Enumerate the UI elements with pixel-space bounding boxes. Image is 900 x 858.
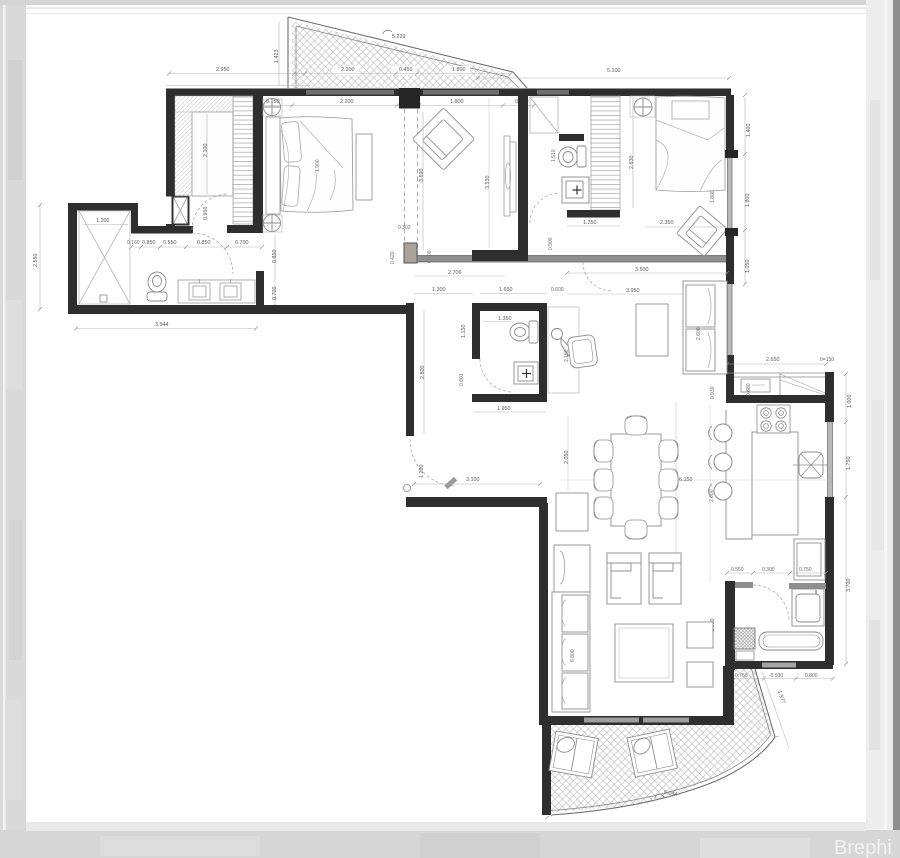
svg-text:2.100: 2.100: [203, 144, 209, 158]
svg-text:0.930: 0.930: [710, 386, 716, 399]
svg-text:1.200: 1.200: [96, 218, 110, 224]
svg-text:2.630: 2.630: [629, 156, 635, 170]
svg-text:3.944: 3.944: [155, 322, 169, 328]
svg-text:0.850: 0.850: [142, 240, 156, 246]
svg-text:2.650: 2.650: [766, 357, 780, 363]
svg-text:1.423: 1.423: [274, 50, 280, 64]
svg-text:0.450: 0.450: [399, 67, 413, 73]
svg-text:3.690: 3.690: [419, 169, 425, 183]
svg-text:3.700: 3.700: [846, 579, 852, 593]
svg-text:6.800: 6.800: [570, 649, 576, 662]
svg-text:0.850: 0.850: [272, 250, 278, 264]
svg-text:1.250: 1.250: [583, 220, 597, 226]
svg-text:1.050: 1.050: [745, 260, 751, 274]
svg-text:2.950: 2.950: [216, 67, 230, 73]
svg-text:1.150: 1.150: [461, 325, 467, 339]
svg-text:0,160: 0,160: [127, 240, 140, 246]
svg-text:0.750: 0.750: [799, 567, 812, 573]
svg-text:0.850: 0.850: [197, 240, 211, 246]
svg-text:0.550: 0.550: [163, 240, 177, 246]
svg-text:1.510: 1.510: [551, 149, 557, 162]
svg-text:1.800: 1.800: [710, 190, 716, 203]
svg-text:2.150: 2.150: [564, 349, 570, 362]
svg-text:1.900: 1.900: [315, 159, 321, 172]
svg-text:1.950: 1.950: [497, 406, 511, 412]
svg-text:3.500: 3.500: [635, 267, 649, 273]
svg-text:0.680: 0.680: [746, 383, 752, 396]
svg-text:1.200: 1.200: [419, 465, 425, 479]
svg-text:1.000: 1.000: [847, 395, 853, 409]
svg-text:2.550: 2.550: [33, 254, 39, 268]
svg-text:5.100: 5.100: [607, 68, 621, 74]
svg-text:0.550: 0.550: [731, 567, 744, 573]
svg-text:1.300: 1.300: [432, 287, 446, 293]
svg-text:2.706: 2.706: [448, 270, 462, 276]
svg-text:1.800: 1.800: [452, 67, 466, 73]
svg-text:2.600: 2.600: [696, 327, 702, 340]
svg-text:3.530: 3.530: [485, 176, 491, 190]
svg-text:3.100: 3.100: [466, 477, 480, 483]
svg-text:0.801: 0.801: [459, 373, 465, 386]
svg-text:2.200: 2.200: [340, 99, 354, 105]
svg-text:0.800: 0.800: [805, 673, 818, 679]
svg-text:Brephi: Brephi: [834, 837, 892, 858]
svg-text:2.800: 2.800: [420, 366, 426, 380]
svg-text:0.300: 0.300: [762, 567, 775, 573]
svg-text:0.950: 0.950: [203, 207, 209, 221]
svg-text:1.800: 1.800: [745, 194, 751, 208]
svg-text:0.600: 0.600: [551, 287, 564, 293]
svg-text:0.700: 0.700: [272, 287, 278, 301]
svg-text:5.229: 5.229: [392, 34, 406, 40]
svg-text:0.900: 0.900: [548, 237, 554, 250]
svg-text:0.700: 0.700: [235, 240, 249, 246]
svg-text:1.750: 1.750: [846, 457, 852, 471]
svg-text:0=150: 0=150: [820, 357, 834, 363]
svg-text:0.302: 0.302: [398, 225, 411, 231]
svg-text:2.050: 2.050: [564, 451, 570, 465]
svg-text:2.350: 2.350: [660, 220, 674, 226]
svg-text:1.650: 1.650: [499, 287, 513, 293]
svg-text:1.350: 1.350: [498, 316, 512, 322]
svg-text:0.420: 0.420: [390, 251, 396, 264]
svg-text:6.150: 6.150: [679, 477, 693, 483]
svg-text:3.950: 3.950: [626, 288, 640, 294]
svg-text:2.200: 2.200: [341, 67, 355, 73]
svg-text:1.400: 1.400: [746, 124, 752, 138]
svg-text:-0.930: -0.930: [769, 673, 783, 679]
svg-text:1.800: 1.800: [450, 99, 464, 105]
